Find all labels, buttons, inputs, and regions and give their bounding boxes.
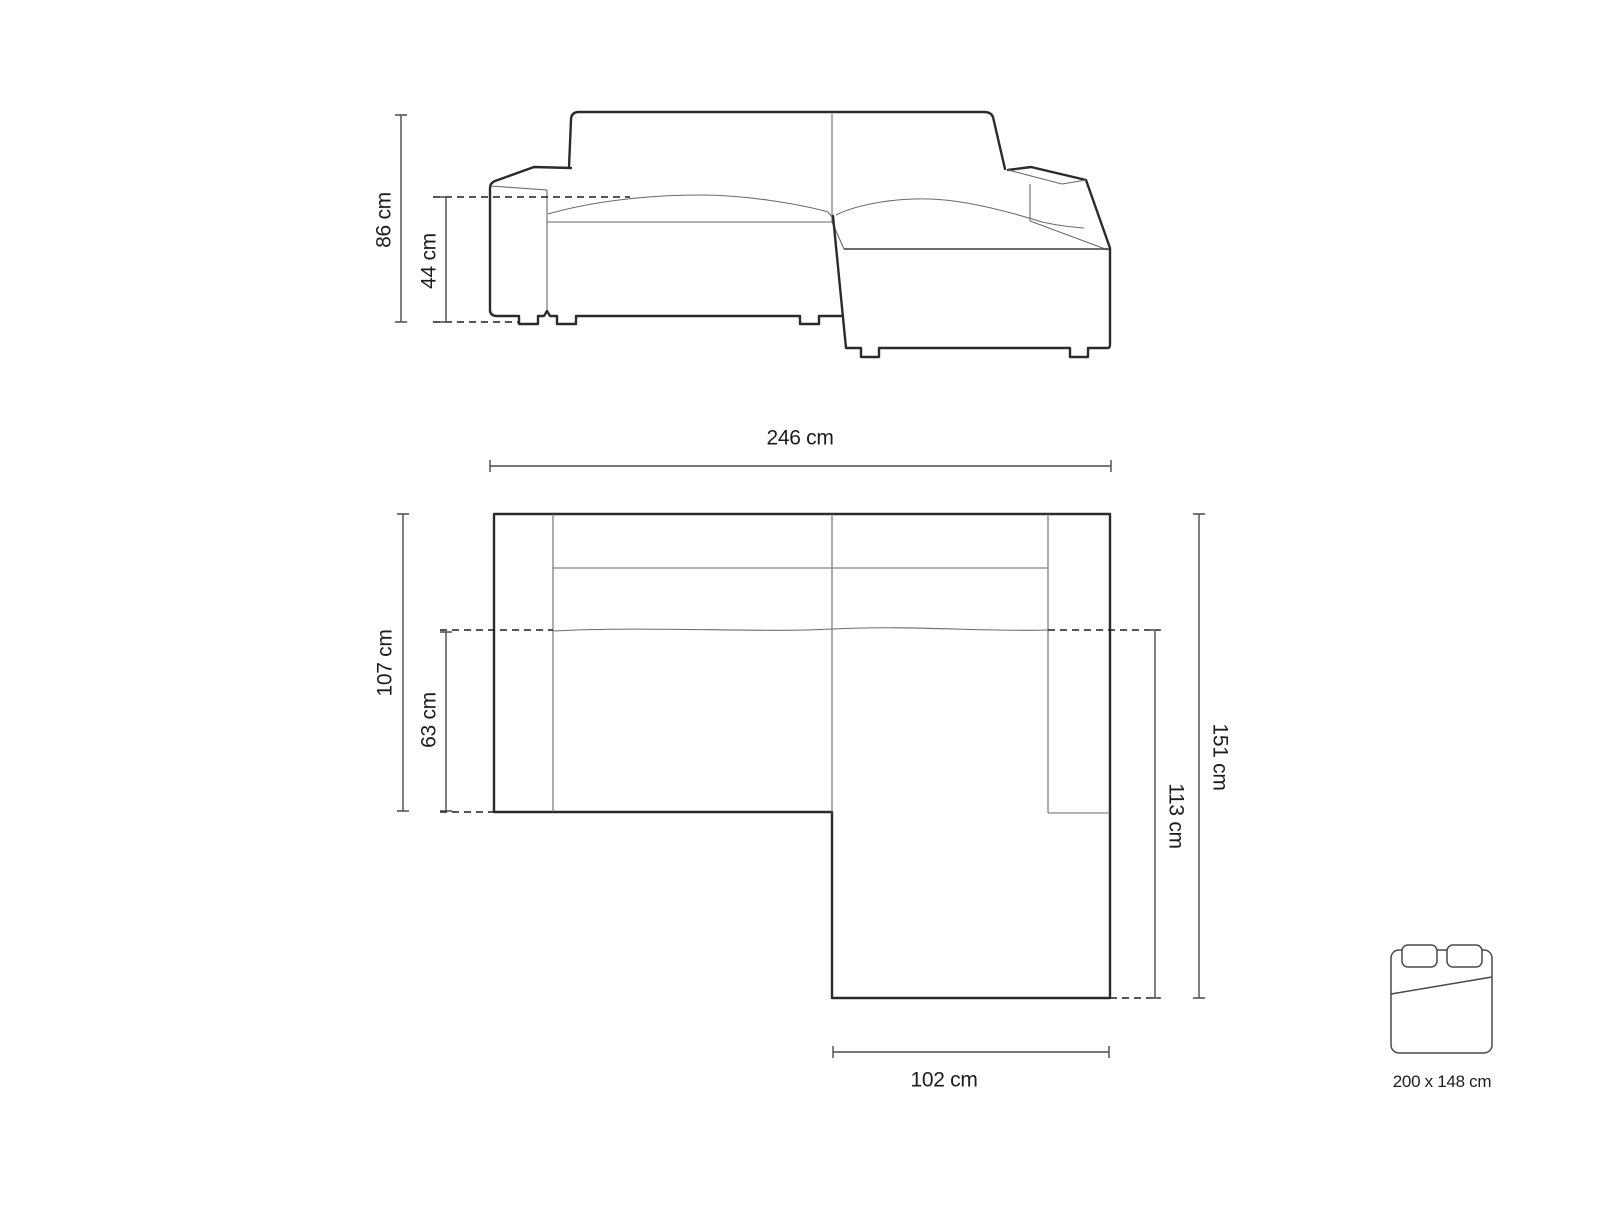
dimension-label-chaise-depth: 113 cm [1165, 783, 1188, 849]
sleeping-area-icon: 200 x 148 cm [1391, 945, 1492, 1091]
dimension-label-side-total-depth: 151 cm [1209, 723, 1232, 790]
dimension-line [1193, 514, 1205, 998]
right-armrest-outline [1008, 167, 1110, 248]
sofa-backrest-outline [569, 112, 1005, 169]
top-plan-view: 246 cm 107 cm 63 cm 151 cm 113 cm [373, 426, 1231, 1091]
plan-outer-boundary [494, 514, 1110, 998]
sleeping-area-label: 200 x 148 cm [1393, 1072, 1492, 1091]
dimension-label-seat-height: 44 cm [417, 233, 440, 289]
dimension-label-overall-height: 86 cm [372, 192, 395, 248]
dimension-line [1149, 630, 1161, 998]
dimension-line [490, 460, 1111, 472]
dimension-overall-height: 86 cm [372, 115, 407, 322]
dimension-overall-width: 246 cm [490, 426, 1111, 472]
dimension-overall-depth: 107 cm [373, 514, 409, 811]
dimension-line [440, 197, 452, 322]
front-elevation-view: 86 cm 44 cm [372, 112, 1110, 357]
dimension-label-overall-width: 246 cm [766, 426, 833, 449]
dimension-label-chaise-width: 102 cm [910, 1068, 977, 1091]
dimension-line [833, 1046, 1109, 1058]
diagram-svg: 86 cm 44 cm [0, 0, 1600, 1200]
dimension-chaise-depth: 113 cm [1149, 630, 1188, 998]
chaise-outline-with-feet [833, 216, 1110, 357]
dimension-chaise-width: 102 cm [833, 1046, 1109, 1091]
dimension-seat-depth: 63 cm [417, 632, 452, 811]
bed-pillow-left-icon [1402, 945, 1437, 967]
sofa-base-bottom-with-feet [490, 311, 841, 324]
plan-seat-front-curve [553, 628, 1048, 631]
furniture-dimension-diagram: 86 cm 44 cm [0, 0, 1600, 1200]
dimension-side-total-depth: 151 cm [1193, 514, 1232, 998]
dimension-line [395, 115, 407, 322]
dimension-label-seat-depth: 63 cm [417, 692, 440, 748]
dimension-line [397, 514, 409, 811]
right-armrest-base-edge [1030, 221, 1108, 250]
dimension-seat-height: 44 cm [417, 197, 452, 322]
left-armrest-top-front-edge [491, 186, 547, 190]
bed-pillow-right-icon [1447, 945, 1482, 967]
left-seat-cushion-curve [548, 195, 832, 217]
dimension-line [440, 632, 452, 811]
right-seat-cushion-curve [836, 199, 1084, 228]
dimension-label-overall-depth: 107 cm [373, 629, 396, 696]
